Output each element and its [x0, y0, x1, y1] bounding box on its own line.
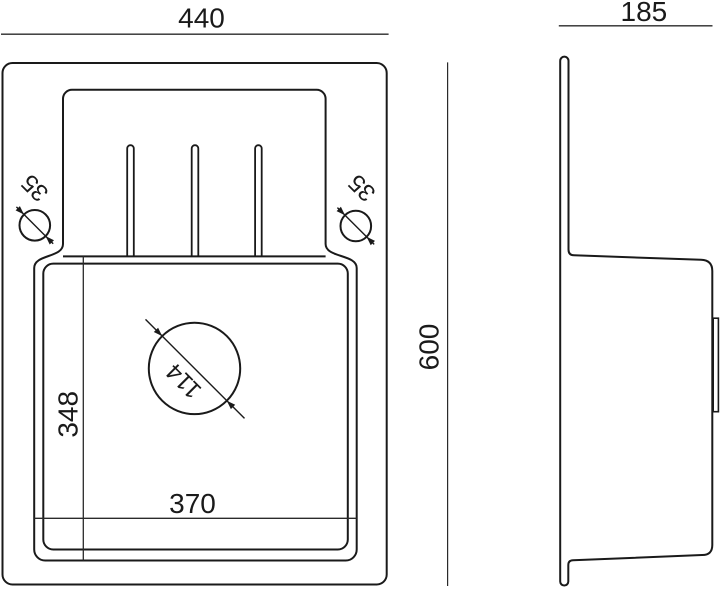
svg-text:185: 185: [621, 0, 668, 27]
svg-text:370: 370: [169, 488, 216, 519]
svg-text:600: 600: [414, 324, 445, 371]
svg-text:348: 348: [53, 391, 84, 438]
svg-text:440: 440: [178, 3, 225, 34]
